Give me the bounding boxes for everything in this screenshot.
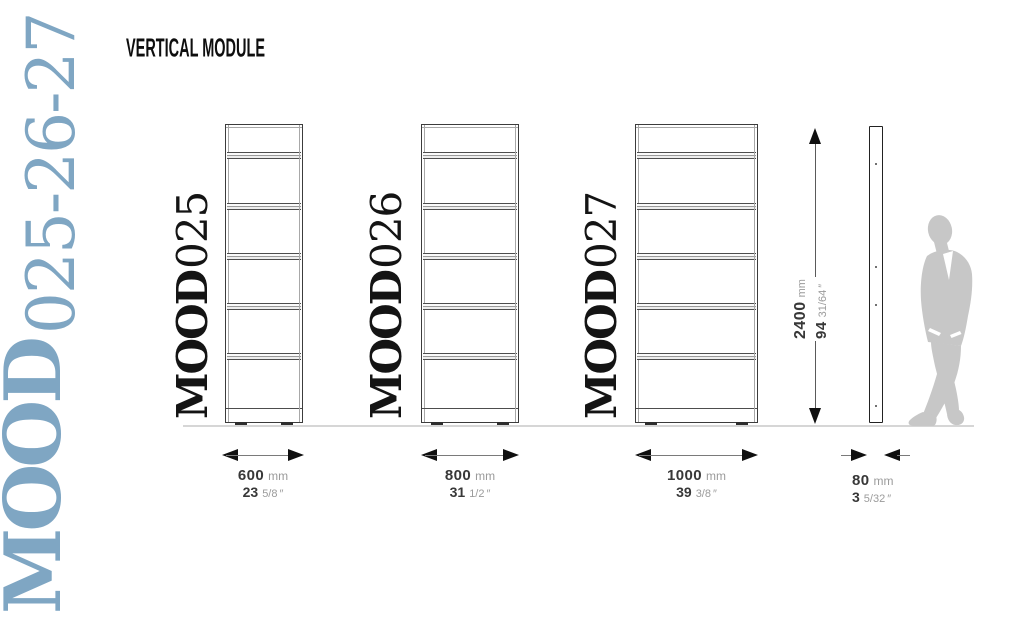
- depth-dimension-arrow-left: [841, 449, 867, 462]
- unit-label-number: 026: [362, 192, 411, 269]
- base-line: [422, 408, 518, 409]
- width-dimension-arrow: [635, 449, 758, 462]
- height-mm-unit: mm: [796, 279, 808, 297]
- mood026-front-drawing: [421, 124, 519, 423]
- depth-inch-value: 3: [852, 489, 860, 505]
- top-edge-line: [636, 127, 757, 128]
- width-dimension-arrow: [222, 449, 304, 462]
- mood027-width-dimension: 1000mm 393/8″: [635, 449, 758, 500]
- shelf-line: [227, 303, 301, 310]
- foot: [645, 422, 657, 425]
- width-inch-value: 23: [243, 484, 259, 500]
- inch-mark: ″: [279, 488, 283, 500]
- inch-mark: ″: [713, 488, 717, 500]
- page-title: VERTICAL MODULE: [126, 33, 265, 63]
- foot: [431, 422, 443, 425]
- inch-mark: ″: [817, 284, 829, 288]
- unit-label-mood025: MOOD025: [172, 192, 214, 419]
- arrow-down-icon: [809, 408, 821, 424]
- fixing-dot: [875, 266, 877, 268]
- width-inch-fraction: 1/2: [469, 488, 484, 500]
- shelf-line: [423, 303, 517, 310]
- width-mm-unit: mm: [268, 469, 288, 483]
- foot: [497, 422, 509, 425]
- foot: [281, 422, 293, 425]
- shelf-line: [637, 353, 756, 360]
- inch-mark: ″: [887, 493, 891, 505]
- shelf-line: [227, 253, 301, 260]
- mood027-front-drawing: [635, 124, 758, 423]
- mood026-width-dimension: 800mm 311/2″: [421, 449, 519, 500]
- top-edge-line: [422, 127, 518, 128]
- mood025-width-dimension: 600mm 235/8″: [222, 449, 304, 500]
- shelf-line: [637, 203, 756, 210]
- mood025-front-drawing: [225, 124, 303, 423]
- depth-inch-fraction: 5/32: [864, 493, 885, 505]
- fixing-dot: [875, 163, 877, 165]
- top-edge-line: [226, 127, 302, 128]
- shelf-line: [637, 303, 756, 310]
- side-view-drawing: [869, 126, 883, 423]
- unit-label-serif: MOOD: [577, 271, 626, 419]
- height-inch-value: 94: [813, 321, 830, 339]
- brand-number-text: 025-26-27: [26, 14, 77, 335]
- brand-serif-text: MOOD: [4, 340, 65, 614]
- depth-dimension-arrow-right: [884, 449, 910, 462]
- inch-mark: ″: [486, 488, 490, 500]
- width-dimension-arrow: [421, 449, 519, 462]
- arrow-up-icon: [809, 128, 821, 144]
- fixing-dot: [875, 304, 877, 306]
- depth-mm-value: 80: [852, 472, 870, 489]
- ground-line: [183, 425, 974, 427]
- shelf-line: [423, 152, 517, 159]
- shelf-line: [227, 152, 301, 159]
- width-inch-fraction: 5/8: [262, 488, 277, 500]
- unit-label-serif: MOOD: [168, 271, 217, 419]
- depth-mm-unit: mm: [874, 474, 894, 488]
- fixing-dot: [875, 405, 877, 407]
- width-mm-value: 1000: [667, 467, 702, 484]
- shelf-line: [423, 253, 517, 260]
- shelf-line: [227, 203, 301, 210]
- shelf-line: [423, 203, 517, 210]
- width-inch-fraction: 3/8: [696, 488, 711, 500]
- depth-dimension-text: 80mm 35/32″: [852, 467, 894, 505]
- brand-vertical-title: MOOD025-26-27: [4, 14, 65, 614]
- base-line: [226, 408, 302, 409]
- arrow-right-icon: [851, 449, 867, 461]
- shelf-line: [637, 253, 756, 260]
- width-mm-value: 800: [445, 467, 471, 484]
- spec-sheet: MOOD025-26-27 VERTICAL MODULE MOOD025 MO…: [0, 0, 1024, 633]
- height-dimension-text: 2400mm 9431/64″: [791, 277, 833, 341]
- base-line: [636, 408, 757, 409]
- width-mm-unit: mm: [706, 469, 726, 483]
- height-dimension-arrow: [808, 128, 823, 424]
- unit-label-mood027: MOOD027: [581, 192, 623, 419]
- foot: [235, 422, 247, 425]
- shelf-line: [423, 353, 517, 360]
- height-inch-fraction: 31/64: [817, 290, 829, 318]
- foot: [736, 422, 748, 425]
- width-mm-value: 600: [238, 467, 264, 484]
- person-silhouette: [903, 214, 977, 427]
- arrow-right-icon: [288, 449, 304, 461]
- arrow-right-icon: [742, 449, 758, 461]
- height-mm-value: 2400: [792, 301, 809, 339]
- width-inch-value: 39: [676, 484, 692, 500]
- width-mm-unit: mm: [475, 469, 495, 483]
- unit-label-serif: MOOD: [362, 271, 411, 419]
- width-inch-value: 31: [450, 484, 466, 500]
- unit-label-mood026: MOOD026: [366, 192, 408, 419]
- unit-label-number: 025: [168, 192, 217, 269]
- shelf-line: [637, 152, 756, 159]
- unit-label-number: 027: [577, 192, 626, 269]
- shelf-line: [227, 353, 301, 360]
- arrow-right-icon: [503, 449, 519, 461]
